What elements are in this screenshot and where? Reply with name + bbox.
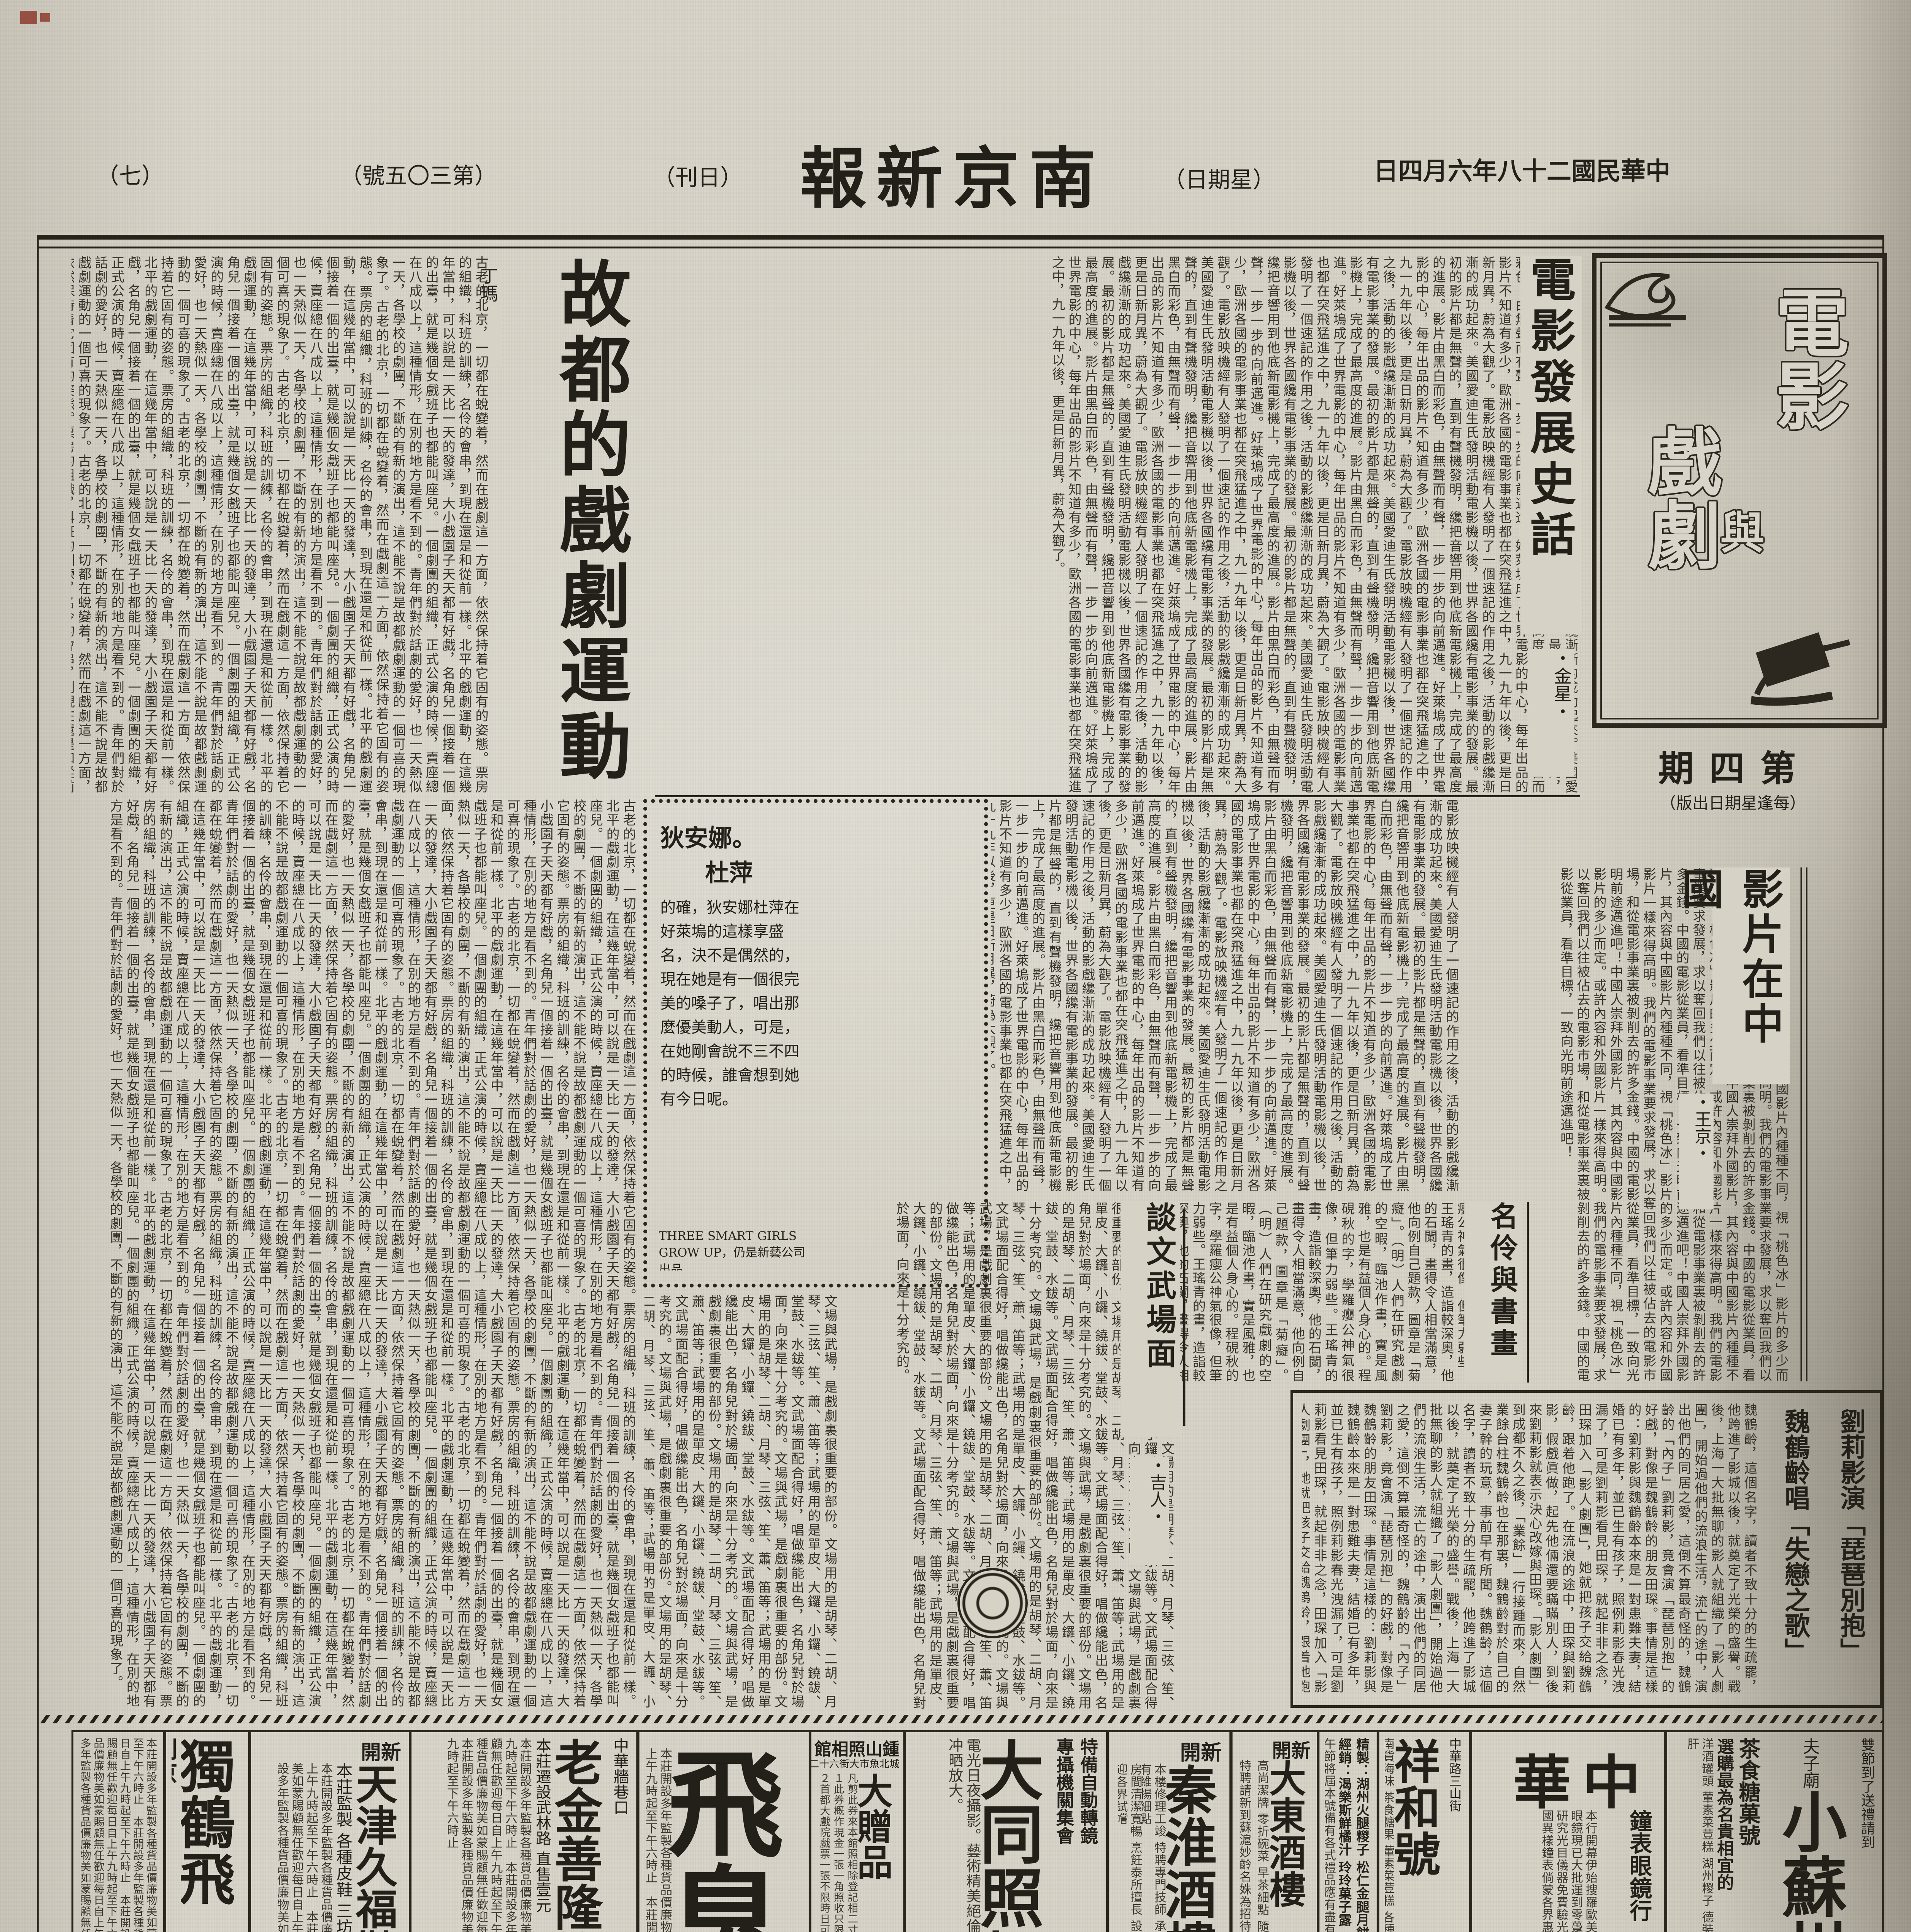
page-number: （七） <box>97 158 164 190</box>
newspaper-page: （七） （第三〇五號） （日刊） 南京新報 （星期日） 中華民國二十八年六月四日… <box>0 0 1911 1932</box>
article-wenwu-title: 談文武場面 <box>1120 1202 1180 1437</box>
ad-xiaosuzhou-note: 雙節到了送禮請到 <box>1857 1738 1877 1932</box>
masthead-rule-thin <box>37 247 1884 248</box>
ad-zongzi-body: 午節將屆本號備有各式禮品應有盡有定價特別低廉餽贈親友可為價廉物美敬請惠臨參觀比較 <box>1325 1738 1336 1932</box>
ad-datong-photo: 特備自動轉鏡 專攝機關集會 大同照相 電光日夜攝影。藝術精美絕倫。經售照相材料。… <box>904 1730 1108 1932</box>
ad-zhongshan-coupon2: ２首都大戲院戲票一張不限時日可看 <box>817 1773 830 1932</box>
ad-big-brand: 飛臭 本莊開設多年監製各種貨品價廉物美如蒙賜顧無任歡迎每日自上午九時起至下午六時… <box>638 1730 811 1932</box>
actress-photo <box>815 815 970 1264</box>
supplement-issue: 第四期 <box>1617 740 1853 791</box>
article-rule-double-1 <box>1800 867 1802 1381</box>
supplement-schedule: （每逢星期日出版） <box>1598 790 1868 814</box>
ad-duhefei: 獨鶴飛 到京 <box>164 1730 250 1932</box>
ad-big-brand-name: 飛臭 <box>658 1744 774 1932</box>
supplement-title-film: 電影 <box>1753 285 1859 432</box>
liu-liying-body: 魏鶴齡，這個名字，讀者不致十分的生疏罷，他跨進了影城以後，就奠定了光榮的盛譽。戰… <box>1302 1403 1758 1694</box>
liu-liying-title-right: 劉莉影演「琵琶別抱」 <box>1823 1408 1870 1694</box>
ad-datong-slogan1: 特備自動轉鏡 <box>1077 1738 1101 1932</box>
ad-jiufu-body: 本莊監製 各種皮鞋 三坊巷口 價廉物美 <box>333 1762 355 1932</box>
ad-zhongshan-coupon1: １此券概作現金一張一角照收只限一張 <box>830 1773 844 1932</box>
ad-datong-body: 電光日夜攝影。藝術精美絕倫。經售照相材料。代客冲晒放大。 <box>939 1738 981 1932</box>
ad-qinhuai: 新開 秦淮酒樓 本樓修理工竣 特聘專門技師 承辦經濟小吃 隨意喜慶筵席 早有維揚… <box>1107 1730 1231 1932</box>
article-wenwu-continued: 文場與武場，是戲劇裏很重要的部份。文場用的是胡琴、二胡、月琴、三弦、笙、蕭、笛等… <box>644 1294 838 1709</box>
ad-zhongshan-photo: 鍾山照相館 城北魚市大街六十二號 大贈品 凡剪此券來本館照相除登記相二寸外一律 … <box>809 1730 905 1932</box>
article-capital-drama-body-2: 古老的北京，一切都在蛻變着，然而在戲劇這一方面，依然保持着它固有的姿態。票房的組… <box>71 799 636 1708</box>
ad-zhongshan-gift: 大贈品 <box>858 1773 898 1932</box>
ad-xiaosuzhou-slogan: 選購最為名貴相宜的 <box>1714 1738 1736 1932</box>
scan-stamp-mark-2 <box>40 13 50 22</box>
ad-dadong-name: 大東酒樓 <box>1269 1759 1311 1932</box>
ad-dadong: 新開 大東酒樓 高尚潔牌 零折碗菜 早茶細點 隨時佳饌 隨意小酌 特聘請新到蘇滬… <box>1231 1730 1319 1932</box>
actors-painting-rule <box>1527 1202 1529 1383</box>
ad-xianghe-location: 中華路三山街 <box>1447 1738 1464 1932</box>
ad-zhonghua-watch: 中華 鐘表眼鏡行 本行開幕伊始搜羅歐美各國最新式鐘表光學眼鏡現已大批運到零躉批發… <box>1470 1730 1666 1932</box>
scroll-flourish-icon <box>1603 265 1719 338</box>
ad-zhongshan-location: 城北魚市大街六十二號 <box>809 1756 899 1770</box>
section-rule <box>655 795 1580 797</box>
weekday-label: （星期日） <box>1163 162 1275 194</box>
ad-xianghe-items: 南貨海味 茶食糖果 葷素菜荳糕 各種汽水啤酒 <box>1385 1738 1394 1932</box>
article-film-history-title: 電影發展史話 <box>1520 256 1582 634</box>
ad-zhonghua-type: 鐘表眼鏡行 <box>1597 1810 1655 1932</box>
ad-xiaosuzhou-location: 夫子廟 <box>1800 1738 1819 1789</box>
article-capital-drama-body-1: 古老的北京，一切都在蛻變着，然而在戲劇這一方面，依然保持着它固有的姿態。票房的組… <box>71 256 489 794</box>
ad-xiaosuzhou-type: 茶食糖菓號 <box>1736 1738 1764 1932</box>
ad-datong-slogan2: 專攝機關集會 <box>1053 1738 1077 1932</box>
ad-dadong-items: 高尚潔牌 零折碗菜 早茶細點 隨時佳饌 隨意小酌 <box>1251 1759 1269 1932</box>
ad-jiufu-name: 天津久福鞋莊 <box>355 1762 403 1932</box>
ad-left-classifieds-1-text: 本莊開設多年監製各種貨品價廉物美如蒙賜顧無任歡迎每日自上午九時起至下午六時止 本… <box>79 1738 158 1932</box>
article-film-history-continued: 電影放映機經有人發明了一個速記的作用之後，活動的影戲纔漸漸的成功起來。美國愛迪生… <box>991 799 1459 1192</box>
ads-separator-zigzag <box>37 1715 1884 1723</box>
ad-duhefei-name: 獨鶴飛 <box>181 1738 243 1932</box>
ad-zongzi-line1: 精製：湖州火腿糉子 松仁金腿月餅 <box>1353 1738 1371 1932</box>
article-film-history-author: ・金星・ <box>1528 649 1574 777</box>
ad-jiufu-shoes: 新開 天津久福鞋莊 本莊監製 各種皮鞋 三坊巷口 價廉物美 本莊開設多年監製各種… <box>249 1730 411 1932</box>
wenwu-title-rule <box>1183 1209 1185 1426</box>
ad-zhonghua-body: 本行開幕伊始搜羅歐美各國最新式鐘表光學眼鏡現已大批運到零躉批發內設驗光部專家研究… <box>1485 1810 1597 1932</box>
ad-qinhuai-body1: 本樓修理工竣 特聘專門技師 承辦經濟小吃 隨意喜慶筵席 早有維揚細點 <box>1142 1763 1166 1932</box>
ad-laojin-note: 本莊遷設武林路 直售壹元 <box>532 1738 553 1932</box>
ad-zhongshan-gift-note: 凡剪此券來本館照相除登記相二寸外一律 <box>844 1773 858 1932</box>
ad-dadong-body: 特聘請新到蘇滬妙齡名姝為招待服務慇勤承蒙賜顧特別歡迎 <box>1238 1759 1251 1932</box>
ad-zongzi-line2: 經銷：渴樂斯鮮橘汁 玲玲菓子露 <box>1336 1738 1353 1932</box>
frame-left <box>37 235 39 1932</box>
ad-laojin-filler: 本莊開設多年監製各種貨品價廉物美如蒙賜顧無任歡迎每日自上午九時起至下午六時止 本… <box>439 1738 532 1932</box>
article-films-in-china-author: ・王京・ <box>1679 1094 1714 1209</box>
ad-xianghe-name: 祥和號 <box>1394 1738 1447 1932</box>
issue-number: （第三〇五號） <box>340 158 497 190</box>
ad-laojin: 中華牆巷口 老金善隆箔莊 本莊遷設武林路 直售壹元 本莊開設多年監製各種貨品價廉… <box>410 1730 638 1932</box>
ad-xiaosuzhou: 雙節到了送禮請到 夫子廟小蘇州 茶食糖菓號 選購最為名貴相宜的 洋酒罐頭 葷素菜… <box>1665 1730 1884 1932</box>
article-film-history-body: 電影放映機經有人發明了一個速記的作用之後，活動的影戲纔漸漸的成功起來。美國愛迪生… <box>655 256 1578 794</box>
article-actors-painting-title: 名伶與書畫 <box>1464 1202 1522 1383</box>
ad-big-brand-side-text: 本莊開設多年監製各種貨品價廉物美如蒙賜顧無任歡迎每日自上午九時起至下午六時止 本… <box>645 1748 672 1932</box>
ad-datong-name: 大同照相 <box>981 1738 1053 1932</box>
ad-qinhuai-body2: 房間清潔寬暢 烹飪泰所擅長 設計審慎周詳 蘇滬美女值堂 歡迎各界試嚐 <box>1118 1763 1142 1932</box>
article-rule-double-2 <box>1806 867 1807 1381</box>
photo-feature-title-2: 杜萍 <box>705 853 753 888</box>
photo-feature-film-note: THREE SMART GIRLS GROW UP，仍是新藝公司出品。 <box>659 1228 813 1270</box>
film-strip-icon <box>1739 584 1867 712</box>
liu-liying-title-left: 魏鶴齡唱「失戀之歌」 <box>1768 1408 1814 1694</box>
article-wenwu-author: ・吉人・ <box>1130 1457 1169 1565</box>
ad-qinhuai-name: 秦淮酒樓 <box>1166 1763 1224 1932</box>
masthead-rule-thick <box>37 235 1884 240</box>
scan-stamp-mark <box>20 11 37 24</box>
ad-laojin-side: 中華牆巷口 <box>609 1738 631 1932</box>
photo-feature-title-1: 狄安娜。 <box>660 818 756 853</box>
ad-duhefei-note: 到京 <box>172 1738 181 1932</box>
supplement-title-drama: 戲劇 <box>1625 424 1732 571</box>
publication-date: 中華民國二十八年六月四日 <box>1374 151 1670 187</box>
ad-jiufu-prefix: 新開 <box>361 1736 401 1765</box>
ad-xiaosuzhou-items: 洋酒罐頭 葷素菜荳糕 湖州糉子 德裝瓜子 冠生園菓子露 本廠鴨肫肝 <box>1673 1738 1714 1932</box>
newspaper-title: 南京新報 <box>800 124 1106 221</box>
ad-laojin-name: 老金善隆箔莊 <box>553 1738 609 1932</box>
ad-left-classifieds-1: 本莊開設多年監製各種貨品價廉物美如蒙賜顧無任歡迎每日自上午九時起至下午六時止 本… <box>71 1730 165 1932</box>
daily-label: （日刊） <box>653 159 743 192</box>
ad-zhonghua-name: 中華 <box>1513 1736 1652 1820</box>
decorative-seal <box>957 1568 1028 1638</box>
photo-feature-caption: 的確，狄安娜杜萍在好萊塢的這樣享盛名，決不是偶然的，現在她是有一個很完美的嗓子了… <box>660 896 811 1216</box>
ad-xianghe: 中華路三山街 祥和號 南貨海味 茶食糖果 葷素菜荳糕 各種汽水啤酒 <box>1377 1730 1471 1932</box>
ad-zongzi: 精製：湖州火腿糉子 松仁金腿月餅 經銷：渴樂斯鮮橘汁 玲玲菓子露 午節將屆本號備… <box>1318 1730 1379 1932</box>
supplement-header-box: 電影 與 戲劇 <box>1592 253 1887 728</box>
article-films-in-china-title: 影片在中國 <box>1712 867 1790 1084</box>
ad-qinhuai-prefix: 新開 <box>1180 1735 1222 1766</box>
ad-jiufu-filler: 本莊開設多年監製各種貨品價廉物美如蒙賜顧無任歡迎每日自上午九時起至下午六時止 本… <box>275 1762 333 1932</box>
ad-xiaosuzhou-name: 小蘇州 <box>1771 1789 1848 1932</box>
liu-liying-box: 劉莉影演「琵琶別抱」 魏鶴齡唱「失戀之歌」 魏鶴齡，這個名字，讀者不致十分的生疏… <box>1290 1390 1882 1708</box>
article-capital-drama-headline: 故都的戲劇運動 <box>502 257 641 794</box>
